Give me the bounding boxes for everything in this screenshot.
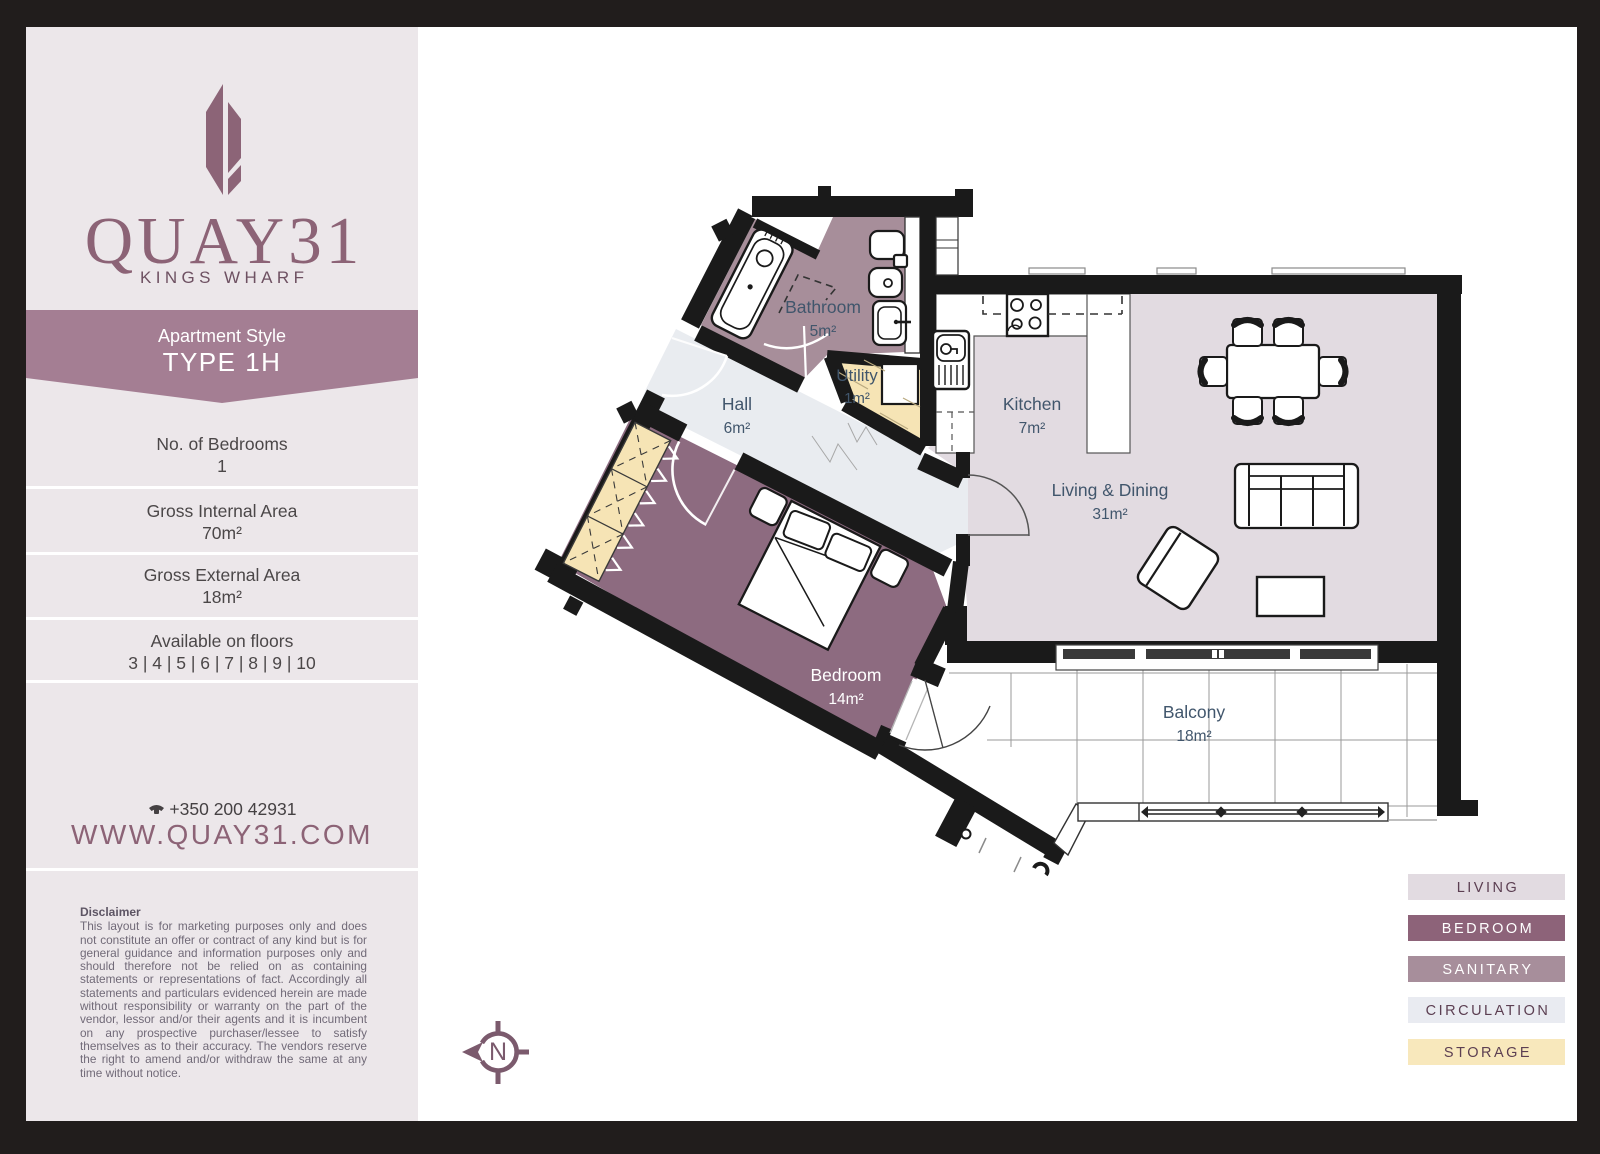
svg-text:Utility: Utility bbox=[836, 366, 878, 385]
svg-text:LIVING: LIVING bbox=[1457, 880, 1520, 896]
svg-text:Living & Dining: Living & Dining bbox=[1052, 480, 1169, 500]
svg-text:Balcony: Balcony bbox=[1163, 702, 1226, 722]
svg-text:14m²: 14m² bbox=[828, 691, 863, 708]
svg-text:CIRCULATION: CIRCULATION bbox=[1426, 1003, 1551, 1019]
svg-text:SANITARY: SANITARY bbox=[1442, 962, 1533, 978]
svg-text:Bathroom: Bathroom bbox=[785, 297, 861, 317]
svg-text:Hall: Hall bbox=[722, 394, 752, 414]
svg-text:STORAGE: STORAGE bbox=[1444, 1045, 1532, 1061]
svg-text:31m²: 31m² bbox=[1092, 506, 1127, 523]
svg-text:Bedroom: Bedroom bbox=[810, 665, 881, 685]
svg-text:1m²: 1m² bbox=[844, 390, 870, 407]
svg-text:18m²: 18m² bbox=[1176, 728, 1211, 745]
svg-text:N: N bbox=[489, 1038, 507, 1066]
svg-text:6m²: 6m² bbox=[724, 420, 751, 437]
svg-text:7m²: 7m² bbox=[1019, 420, 1046, 437]
svg-text:Kitchen: Kitchen bbox=[1003, 394, 1061, 414]
svg-text:BEDROOM: BEDROOM bbox=[1442, 921, 1534, 937]
svg-text:5m²: 5m² bbox=[810, 323, 837, 340]
